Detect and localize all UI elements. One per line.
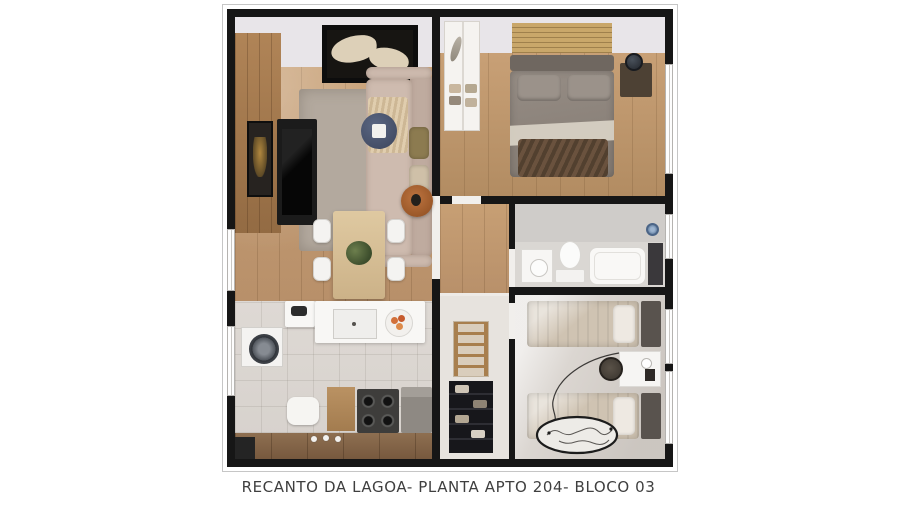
wall-bedroom2-left-a: [509, 295, 515, 303]
window-living-left: [227, 229, 235, 291]
wall-divider-lower: [432, 279, 440, 459]
folded-clothes: [473, 400, 487, 408]
olive-pillow: [409, 127, 429, 159]
wall-divider-upper: [432, 17, 440, 196]
folded-clothes: [455, 385, 469, 393]
cord-line: [553, 353, 619, 425]
wall-left-mid: [227, 291, 235, 326]
wall-right-4: [665, 364, 673, 371]
wall-bathroom-left: [509, 204, 515, 249]
kitchen-sink: [333, 309, 377, 339]
dining-chair: [387, 257, 405, 281]
hallway-floor: [440, 204, 509, 295]
wood-cabinet: [327, 387, 355, 431]
wall-right-1: [665, 17, 673, 64]
corner-niche: [235, 437, 255, 459]
folded-clothes: [449, 84, 461, 93]
floor-plan-frame: [222, 4, 678, 472]
washer-drum: [249, 334, 279, 364]
master-pillow: [567, 75, 611, 101]
brown-throw: [518, 139, 608, 177]
dish: [311, 436, 317, 442]
ladder-rack: [453, 321, 489, 377]
wall-bedroom2-left-b: [509, 339, 515, 459]
closet-decor: [448, 35, 464, 62]
bathtub: [589, 247, 646, 285]
wall-bottom: [227, 459, 673, 467]
wall-right-2: [665, 174, 673, 214]
wardrobe-closet: [444, 21, 480, 131]
folded-clothes: [449, 96, 461, 105]
stool: [287, 397, 319, 425]
wall-top: [227, 9, 673, 17]
dish: [335, 436, 341, 442]
table-decor: [411, 194, 421, 206]
wall-master-bottom-a: [440, 196, 452, 204]
fruit-bowl: [385, 309, 413, 337]
dining-chair: [313, 219, 331, 243]
basin: [530, 259, 548, 277]
dining-chair: [387, 219, 405, 243]
headboard: [641, 301, 661, 347]
window-bathroom-right: [665, 214, 673, 259]
dining-chair: [313, 257, 331, 281]
cooktop-stove: [357, 389, 399, 433]
kettle: [291, 306, 307, 316]
wall-master-bottom-b: [481, 196, 665, 204]
shower-glass: [648, 243, 663, 285]
toilet: [559, 241, 581, 269]
window-kitchen-left: [227, 326, 235, 396]
black-open-shelf: [449, 381, 493, 453]
slat-wall-panel: [512, 23, 612, 53]
table-tray: [372, 124, 386, 138]
vanity-sink: [521, 249, 553, 283]
master-pillow: [517, 75, 561, 101]
tv: [282, 129, 312, 215]
dish: [323, 435, 329, 441]
kitchen-counter: [315, 301, 425, 343]
floor-plan-page: { "caption": { "text": "RECANTO DA LAGOA…: [0, 0, 897, 507]
toilet-tank: [555, 269, 585, 283]
window-master-right: [665, 64, 673, 174]
counter-left-cabinet: [285, 301, 315, 327]
art-gold-shape: [253, 137, 267, 177]
wall-right-3: [665, 259, 673, 309]
folded-clothes: [465, 84, 477, 93]
faucet: [352, 322, 356, 326]
plan-caption: RECANTO DA LAGOA- PLANTA APTO 204- BLOCO…: [0, 478, 897, 496]
potted-plant: [346, 241, 372, 265]
window-bedroom2-right-a: [665, 309, 673, 364]
floor-plan: [227, 9, 673, 467]
round-coffee-table: [401, 185, 433, 217]
window-bedroom2-right-b: [665, 371, 673, 444]
rug-dot: [609, 427, 612, 430]
folded-clothes: [471, 430, 485, 438]
wall-art-frame: [247, 121, 273, 197]
table-lamp: [625, 53, 643, 71]
round-side-table: [361, 113, 397, 149]
folded-clothes: [465, 98, 477, 107]
refrigerator: [401, 387, 432, 433]
wall-left-lower: [227, 396, 235, 459]
nook-partition: [440, 293, 509, 296]
bathroom-wall-band: [515, 204, 665, 244]
wall-bathroom-bottom: [509, 287, 665, 295]
master-headboard: [510, 55, 614, 71]
tv-console: [277, 119, 317, 225]
sofa-arm-top: [366, 67, 432, 79]
round-map-rug: [523, 345, 663, 457]
fruit: [398, 315, 405, 322]
folded-clothes: [455, 415, 469, 423]
fruit: [396, 323, 403, 330]
lower-wood-counter: [235, 433, 432, 459]
shower-head: [646, 223, 659, 236]
wall-right-5: [665, 444, 673, 459]
rug-dot: [547, 431, 550, 434]
washing-machine: [241, 327, 283, 367]
wall-left-upper: [227, 17, 235, 229]
bed-pillow: [613, 305, 635, 343]
